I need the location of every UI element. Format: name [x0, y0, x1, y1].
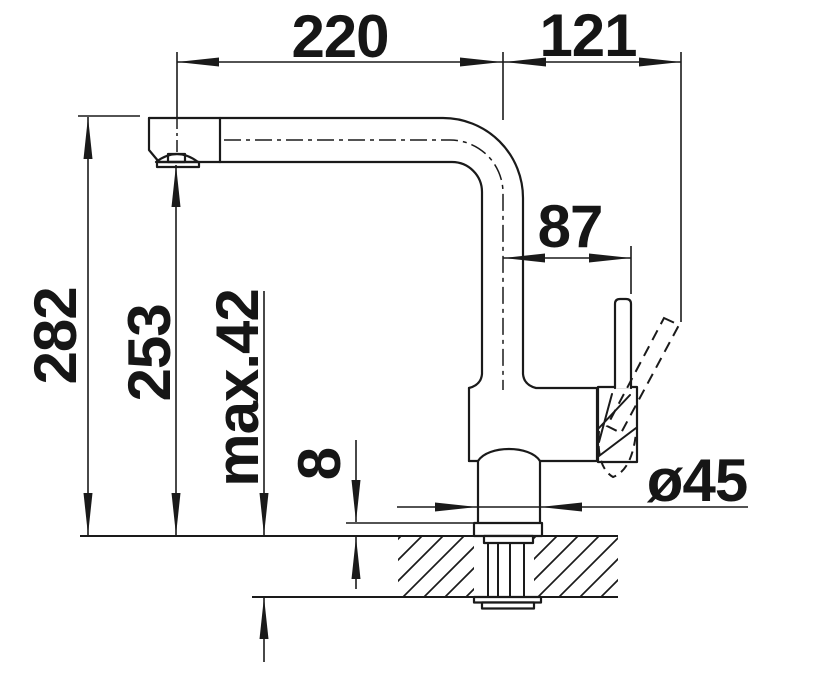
aerator-dome	[156, 154, 198, 162]
base-flange	[474, 523, 542, 536]
threaded-shank	[488, 543, 524, 596]
arrow-d45-right	[540, 503, 582, 512]
aerator-plate	[157, 162, 199, 167]
dim-label-handle-tip-offset: 121	[539, 2, 636, 69]
arrow-253-bottom	[172, 493, 181, 535]
arrow-220-left	[177, 58, 219, 67]
dimension-labels: 220 121 87 282 253 max.42 8 ø45	[22, 2, 747, 514]
base-collar	[484, 536, 533, 543]
arrow-d45-left	[435, 503, 477, 512]
arrow-max42-top	[260, 493, 269, 535]
arrow-8-top	[352, 480, 361, 522]
arrow-220-right	[460, 58, 502, 67]
dim-label-outlet-height: 253	[116, 304, 183, 401]
body-bottom	[469, 449, 597, 461]
arrow-max42-bottom	[260, 597, 269, 639]
spout-head-left-edge	[149, 118, 159, 162]
mounting-nut	[482, 603, 534, 609]
dim-label-overall-height: 282	[22, 287, 89, 384]
arrow-253-top	[172, 165, 181, 207]
dim-label-spout-reach: 220	[291, 3, 388, 70]
faucet-dimension-drawing: 220 121 87 282 253 max.42 8 ø45	[0, 0, 836, 691]
dim-label-max-mount-thickness: max.42	[204, 289, 271, 487]
arrow-8-bottom	[352, 537, 361, 579]
lever-handle	[615, 299, 631, 388]
arrow-282-bottom	[84, 493, 93, 535]
dim-label-base-diameter: ø45	[647, 447, 747, 514]
dim-label-base-plate-height: 8	[286, 448, 353, 480]
dim-label-handle-axis-offset: 87	[538, 193, 603, 260]
shank-edges	[478, 461, 540, 523]
arrow-121-right	[639, 58, 681, 67]
countertop-section	[80, 532, 687, 602]
arrow-282-top	[84, 117, 93, 159]
technical-drawing-sheet: 220 121 87 282 253 max.42 8 ø45	[0, 0, 836, 691]
